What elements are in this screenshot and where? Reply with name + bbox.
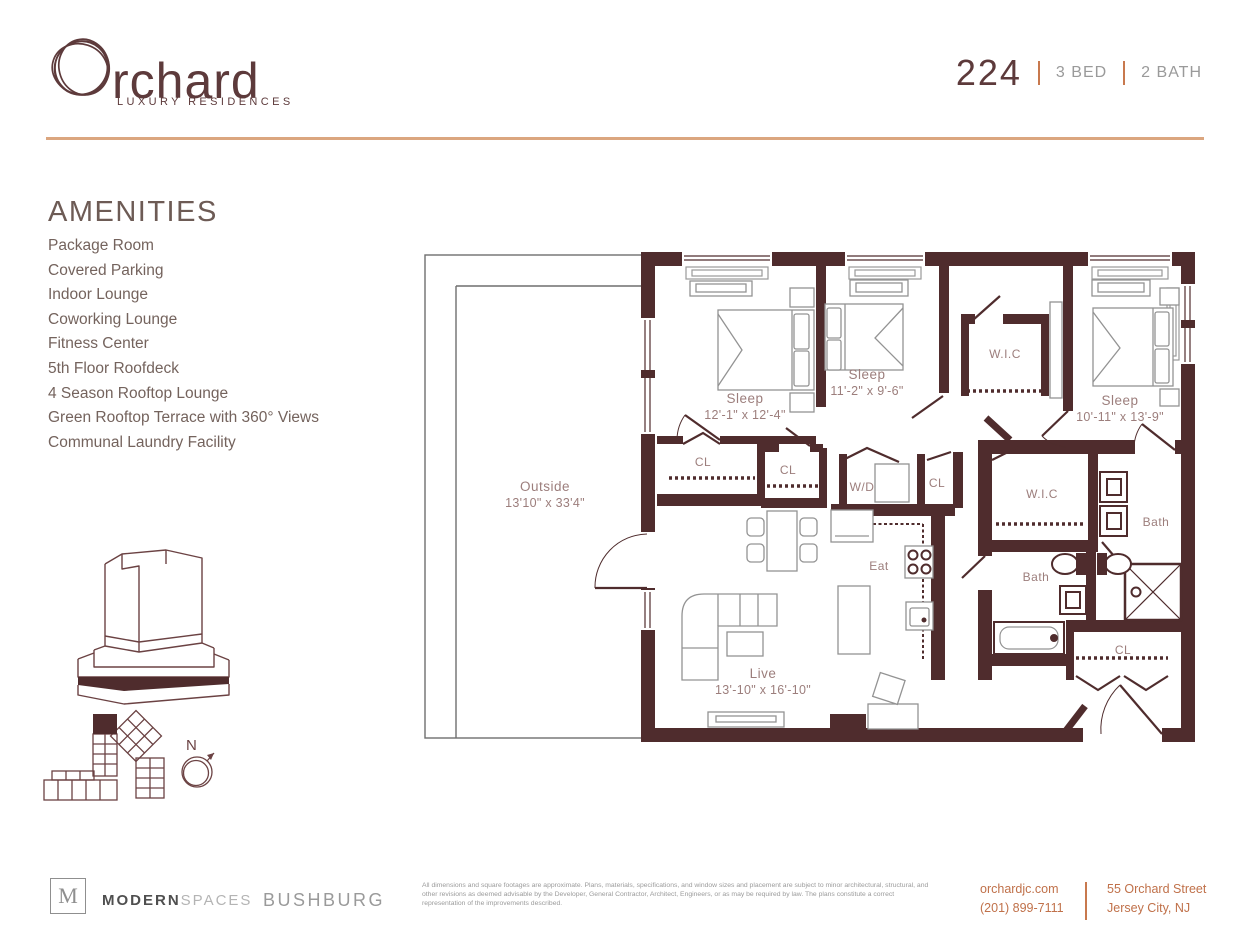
unit-header: 224 3 BED 2 BATH [956,52,1202,94]
brand-tagline: LUXURY RESIDENCES [117,96,294,108]
room-label: Bath [1143,515,1170,529]
unit-number: 224 [956,52,1022,94]
unit-bed-count: 3 BED [1056,64,1107,82]
room-label: Eat [869,559,889,573]
site-keyplan: N [40,706,235,824]
unit-separator [1038,61,1040,85]
unit-separator [1123,61,1125,85]
amenity-item: Indoor Lounge [48,283,319,308]
room-label: W.I.C [1026,487,1058,501]
amenities-heading: AMENITIES [48,196,218,229]
room-dims: 12'-1" x 12'-4" [704,408,785,422]
brand-logo: rchard [46,30,260,104]
broker-name: MODERNSPACES [102,892,252,909]
room-label: Live [750,666,777,681]
floorplan-drawing: Sleep12'-1" x 12'-4"Sleep11'-2" x 9'-6"W… [420,248,1200,744]
amenity-item: Covered Parking [48,259,319,284]
room-label: W/D [850,480,875,494]
amenity-item: 5th Floor Roofdeck [48,357,319,382]
room-label: CL [929,476,945,490]
room-label: CL [695,455,711,469]
room-label: CL [1115,643,1131,657]
room-label: Bath [1023,570,1050,584]
room-dims: 10'-11" x 13'-9" [1076,410,1164,424]
building-dark-band [78,677,229,691]
phone: (201) 899-7111 [980,899,1064,918]
contact-divider [1085,882,1087,920]
amenity-item: Coworking Lounge [48,308,319,333]
developer-name: BUSHBURG [263,890,385,911]
contact-block: orchardjc.com (201) 899-7111 [980,880,1064,918]
address-block: 55 Orchard Street Jersey City, NJ [1107,880,1206,918]
room-label: Outside [520,479,570,494]
north-label: N [186,737,197,754]
room-dims: 11'-2" x 9'-6" [830,384,903,398]
room-label: W.I.C [989,347,1021,361]
address-line1: 55 Orchard Street [1107,880,1206,899]
amenity-item: Package Room [48,234,319,259]
amenity-item: Fitness Center [48,332,319,357]
amenity-item: Green Rooftop Terrace with 360° Views [48,406,319,431]
building-illustration [42,524,247,714]
disclaimer-text: All dimensions and square footages are a… [422,882,938,908]
broker-name-light: SPACES [181,892,253,909]
room-dims: 13'-10" x 16'-10" [715,683,811,697]
unit-bath-count: 2 BATH [1141,64,1202,82]
header-divider [46,137,1204,140]
modern-spaces-logo-icon: M [50,878,86,914]
room-label: Sleep [848,367,885,382]
website: orchardjc.com [980,880,1064,899]
unit-location-marker [93,714,117,734]
logo-o-scribble-icon [46,30,118,104]
broker-name-bold: MODERN [102,892,181,909]
amenity-item: 4 Season Rooftop Lounge [48,382,319,407]
amenities-list: Package RoomCovered ParkingIndoor Lounge… [48,234,319,455]
room-label: Sleep [1101,393,1138,408]
amenity-item: Communal Laundry Facility [48,431,319,456]
address-line2: Jersey City, NJ [1107,899,1206,918]
room-dims: 13'10" x 33'4" [505,496,585,510]
room-label: Sleep [726,391,763,406]
kitchen-counter-edge [873,524,923,660]
room-label: CL [780,463,796,477]
floorplan-page: { "brand": { "name": "Orchard", "wordmar… [0,0,1246,952]
